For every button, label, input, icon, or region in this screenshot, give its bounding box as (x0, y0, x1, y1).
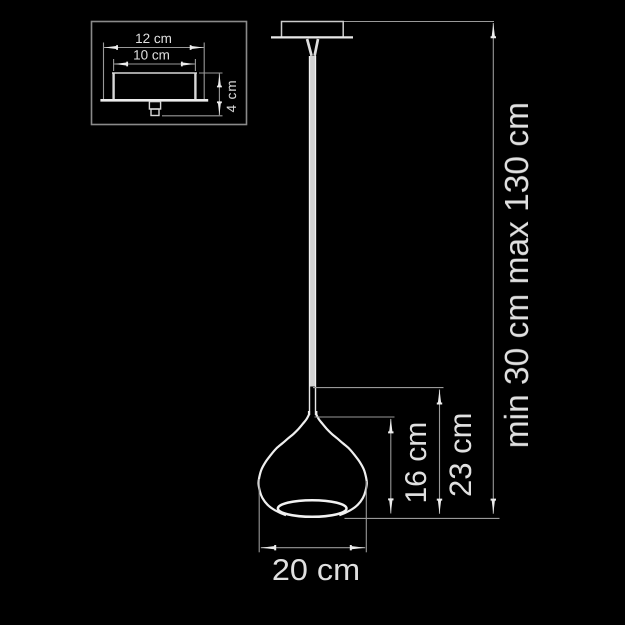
svg-text:4 cm: 4 cm (224, 80, 239, 113)
svg-text:min 30 cm max 130 cm: min 30 cm max 130 cm (499, 102, 536, 448)
svg-text:20 cm: 20 cm (272, 554, 360, 587)
svg-text:12 cm: 12 cm (135, 31, 172, 46)
svg-text:23 cm: 23 cm (443, 413, 478, 497)
svg-text:10 cm: 10 cm (133, 47, 170, 62)
svg-text:16 cm: 16 cm (400, 422, 433, 504)
